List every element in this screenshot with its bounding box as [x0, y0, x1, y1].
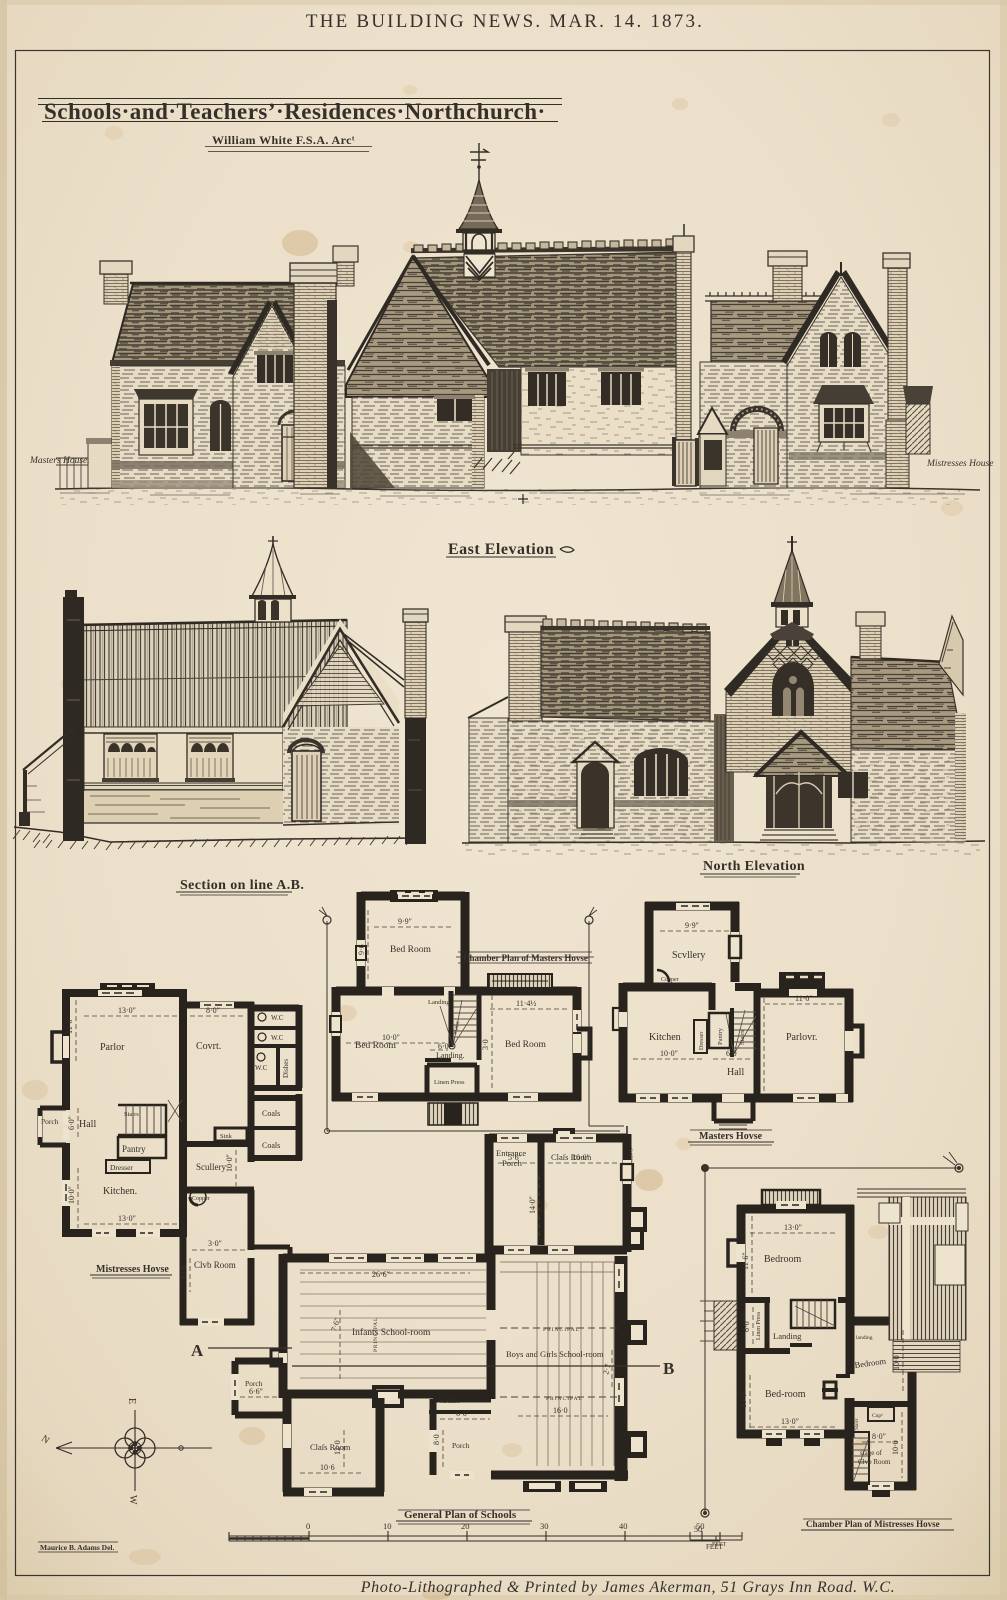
svg-text:E: E [126, 1398, 137, 1404]
svg-text:10·0: 10·0 [892, 1355, 901, 1370]
svg-text:Bed Room: Bed Room [355, 1041, 397, 1051]
svg-text:14·0″: 14·0″ [528, 1196, 537, 1214]
svg-text:East Elevation: East Elevation [448, 541, 554, 558]
svg-text:Scullery: Scullery [196, 1162, 226, 1172]
svg-text:13·0″: 13·0″ [118, 1214, 136, 1223]
svg-text:Linen Press: Linen Press [434, 1079, 465, 1086]
svg-text:RECESS: RECESS [440, 1399, 460, 1405]
svg-text:stage of: stage of [860, 1449, 883, 1457]
svg-text:11·6″: 11·6″ [741, 1252, 750, 1270]
svg-text:10: 10 [383, 1521, 392, 1531]
svg-text:Covrt.: Covrt. [196, 1041, 221, 1052]
svg-text:THE BUILDING NEWS. MAR. 14. 18: THE BUILDING NEWS. MAR. 14. 1873. [306, 11, 704, 32]
svg-text:10·6: 10·6 [320, 1463, 335, 1472]
svg-text:Section on line A.B.: Section on line A.B. [180, 878, 304, 893]
svg-text:9·9″: 9·9″ [685, 921, 699, 930]
svg-text:Stairs: Stairs [855, 1419, 860, 1430]
svg-text:Coals: Coals [262, 1109, 280, 1118]
svg-text:Landing: Landing [773, 1331, 802, 1341]
svg-text:Stairs: Stairs [124, 1111, 139, 1118]
svg-text:Dishes: Dishes [282, 1059, 290, 1078]
svg-text:Clvb Room: Clvb Room [194, 1260, 236, 1270]
svg-text:11·0″: 11·0″ [795, 994, 813, 1003]
svg-text:9·6: 9·6 [357, 944, 366, 955]
svg-text:40: 40 [619, 1521, 628, 1531]
svg-text:FEET: FEET [706, 1543, 723, 1551]
svg-text:Pantry: Pantry [717, 1027, 724, 1045]
svg-text:Chamber Plan of Masters Hovse: Chamber Plan of Masters Hovse [463, 953, 588, 963]
svg-text:3·0″: 3·0″ [208, 1239, 222, 1248]
svg-text:6·6″: 6·6″ [249, 1387, 263, 1396]
svg-text:Bedroom: Bedroom [764, 1254, 801, 1265]
svg-text:5·6″: 5·6″ [508, 1153, 522, 1162]
svg-text:13·0″: 13·0″ [781, 1417, 799, 1426]
svg-text:8·0″: 8·0″ [206, 1006, 220, 1015]
svg-text:W.C: W.C [271, 1034, 284, 1042]
svg-text:Masters Hovse: Masters Hovse [699, 1131, 763, 1142]
svg-text:6·0″: 6·0″ [742, 1318, 751, 1332]
svg-text:6·6″: 6·6″ [456, 1409, 470, 1418]
svg-text:Landing: Landing [428, 999, 450, 1006]
svg-text:Linen Press: Linen Press [756, 1311, 762, 1340]
svg-text:Bed-room: Bed-room [765, 1389, 806, 1400]
svg-text:Dresser: Dresser [110, 1163, 133, 1172]
svg-text:Coals: Coals [262, 1141, 280, 1150]
svg-text:3·0: 3·0 [481, 1039, 490, 1050]
svg-text:8·0″: 8·0″ [872, 1432, 886, 1441]
svg-text:A: A [191, 1341, 204, 1360]
svg-text:6·0: 6·0 [726, 1049, 737, 1058]
svg-text:Clvb Room: Clvb Room [858, 1458, 891, 1466]
svg-text:Dresser: Dresser [699, 1032, 705, 1050]
svg-text:20: 20 [461, 1521, 470, 1531]
svg-text:11·4½: 11·4½ [516, 999, 536, 1008]
svg-text:Photo-Lithographed & Printed b: Photo-Lithographed & Printed by James Ak… [360, 1579, 895, 1596]
svg-text:30: 30 [540, 1521, 549, 1531]
svg-text:10·0″: 10·0″ [67, 1186, 76, 1204]
svg-text:Parlor: Parlor [100, 1042, 125, 1053]
svg-text:10·0: 10·0 [891, 1440, 900, 1455]
svg-text:Hall: Hall [79, 1119, 96, 1130]
svg-text:Maurice B. Adams Del.: Maurice B. Adams Del. [40, 1543, 114, 1552]
svg-text:8·0: 8·0 [432, 1434, 441, 1445]
svg-text:3·0: 3·0 [753, 1041, 762, 1052]
svg-text:Landing.: Landing. [436, 1051, 465, 1060]
svg-text:Pantry: Pantry [122, 1144, 146, 1154]
svg-text:10·0″: 10·0″ [572, 1153, 590, 1162]
svg-text:PRINCIPAL: PRINCIPAL [543, 1327, 580, 1333]
svg-text:Chamber Plan of Mistresses Hov: Chamber Plan of Mistresses Hovse [806, 1519, 940, 1529]
svg-text:William White F.S.A. Arcᵗ: William White F.S.A. Arcᵗ [212, 133, 355, 147]
svg-text:Porch: Porch [452, 1441, 470, 1450]
svg-text:Hall: Hall [727, 1067, 744, 1078]
svg-text:Schools·and·Teachers’·Residenc: Schools·and·Teachers’·Residences·Northch… [44, 99, 546, 124]
svg-text:10·0″: 10·0″ [382, 1033, 400, 1042]
svg-text:Scvllery: Scvllery [672, 950, 705, 961]
svg-text:Bed Room: Bed Room [505, 1040, 547, 1050]
svg-text:6·0″: 6·0″ [67, 1116, 76, 1130]
svg-text:Copper: Copper [661, 977, 679, 983]
svg-text:Porch: Porch [41, 1117, 59, 1126]
svg-text:Kitchen.: Kitchen. [103, 1186, 137, 1197]
svg-text:Sink: Sink [220, 1133, 233, 1140]
svg-text:10·0″: 10·0″ [225, 1154, 234, 1172]
svg-text:Claſs Room: Claſs Room [310, 1442, 351, 1452]
svg-text:North Elevation: North Elevation [703, 859, 805, 874]
svg-text:Stairs: Stairs [739, 1030, 746, 1045]
svg-text:Bed Room: Bed Room [390, 945, 432, 955]
svg-text:10·0: 10·0 [179, 1265, 188, 1280]
svg-text:B: B [663, 1359, 674, 1378]
svg-text:9·9″: 9·9″ [398, 917, 412, 926]
svg-text:PRINCIPAL: PRINCIPAL [546, 1396, 583, 1402]
svg-text:Mistresses House: Mistresses House [926, 459, 993, 469]
svg-text:13·0″: 13·0″ [784, 1223, 802, 1232]
svg-text:Kitchen: Kitchen [649, 1032, 681, 1043]
svg-text:Parlovr.: Parlovr. [786, 1032, 817, 1043]
svg-text:W.C: W.C [255, 1064, 268, 1072]
svg-text:11·0″: 11·0″ [65, 1016, 74, 1034]
svg-text:0: 0 [306, 1521, 310, 1531]
svg-text:Boys and Girls School-room: Boys and Girls School-room [506, 1349, 604, 1359]
svg-text:Copper: Copper [192, 1196, 210, 1202]
svg-text:50: 50 [696, 1521, 705, 1531]
svg-text:10·0″: 10·0″ [660, 1049, 678, 1058]
svg-text:16·0: 16·0 [553, 1406, 568, 1415]
svg-text:W.C: W.C [271, 1014, 284, 1022]
svg-text:landing: landing [856, 1335, 873, 1341]
svg-text:13·0″: 13·0″ [118, 1006, 136, 1015]
svg-text:W: W [127, 1495, 138, 1505]
svg-text:Masters House.: Masters House. [29, 456, 90, 466]
svg-text:General Plan of Schools: General Plan of Schools [404, 1509, 517, 1521]
svg-text:Infants School-room: Infants School-room [352, 1327, 431, 1338]
svg-text:Mistresses Hovse: Mistresses Hovse [96, 1264, 169, 1275]
svg-text:26·6″: 26·6″ [372, 1270, 390, 1279]
svg-text:10·0″: 10·0″ [739, 1390, 748, 1408]
svg-text:12·0: 12·0 [333, 1440, 342, 1455]
svg-text:6·0: 6·0 [438, 1042, 449, 1051]
svg-text:Cupᵈ: Cupᵈ [872, 1413, 883, 1419]
